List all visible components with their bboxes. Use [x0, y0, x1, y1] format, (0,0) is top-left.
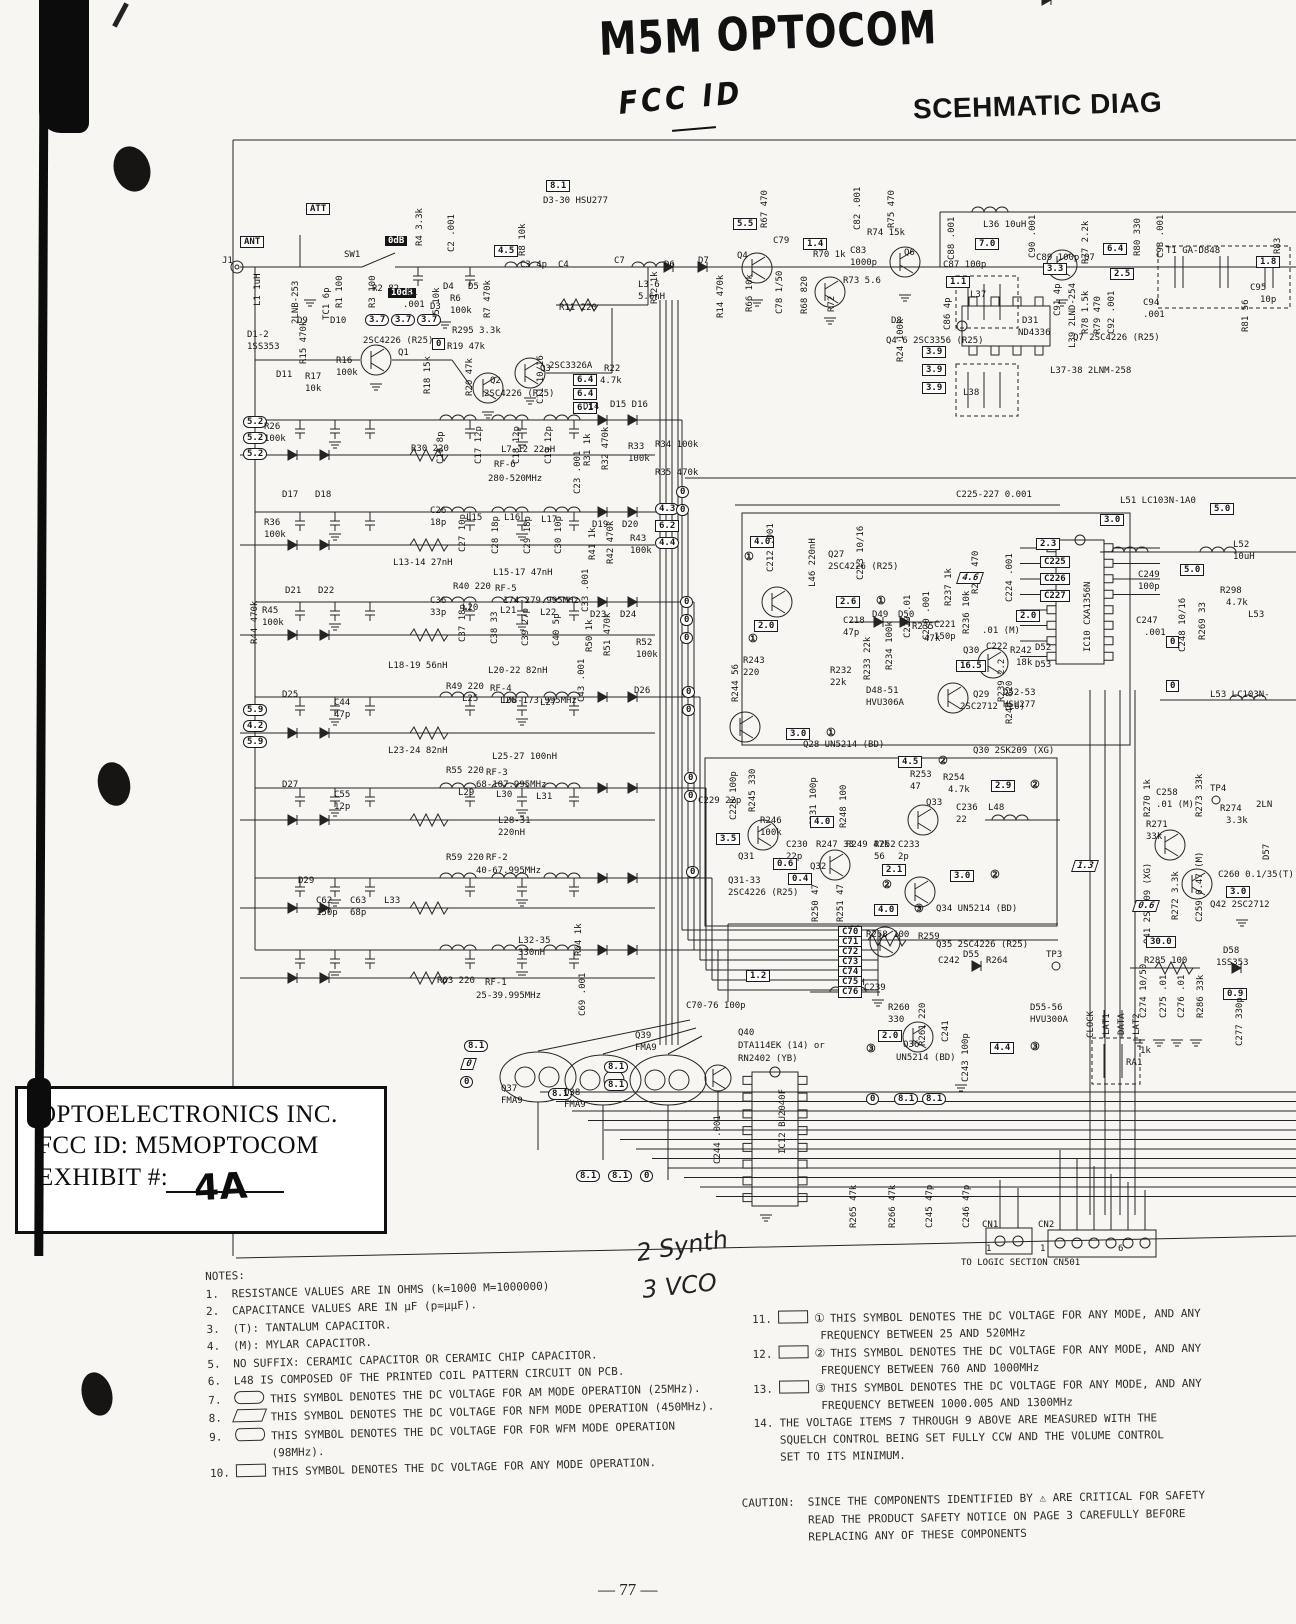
notes-section-left: NOTES: 1.RESISTANCE VALUES ARE IN OHMS (… — [205, 1255, 730, 1482]
fcc-exhibit-stamp-box: OPTOELECTRONICS INC. FCC ID: M5MOPTOCOM … — [15, 1086, 387, 1234]
mode-symbol-rect — [779, 1380, 809, 1393]
caution-note: CAUTION: SINCE THE COMPONENTS IDENTIFIED… — [742, 1485, 1283, 1547]
stamp-fcc-id: FCC ID: M5MOPTOCOM — [38, 1130, 384, 1161]
mode-symbol-rect — [778, 1310, 808, 1323]
stamp-exhibit-value: 4A — [193, 1171, 248, 1205]
mode-symbol-para — [232, 1409, 267, 1423]
scan-artifact-blob-bottom — [27, 1078, 51, 1128]
stamp-company: OPTOELECTRONICS INC. — [38, 1099, 384, 1130]
scanned-schematic-page: ANTJ1ATTSW1R2 82L1 1uH2LNB-253TC1 6pR1 1… — [0, 0, 1296, 1624]
page-number: — 77 — — [598, 1580, 658, 1600]
notes-section-right: 11.①THIS SYMBOL DENOTES THE DC VOLTAGE F… — [752, 1303, 1274, 1466]
stamp-exhibit-label: EXHIBIT #: — [38, 1162, 168, 1193]
mode-symbol-hex — [235, 1427, 265, 1441]
scan-artifact-blob-top — [39, 0, 89, 133]
mode-symbol-rect — [236, 1463, 266, 1477]
mode-symbol-rect — [779, 1345, 809, 1358]
caution-label: CAUTION: — [742, 1494, 809, 1548]
mode-symbol-oval — [234, 1390, 264, 1404]
